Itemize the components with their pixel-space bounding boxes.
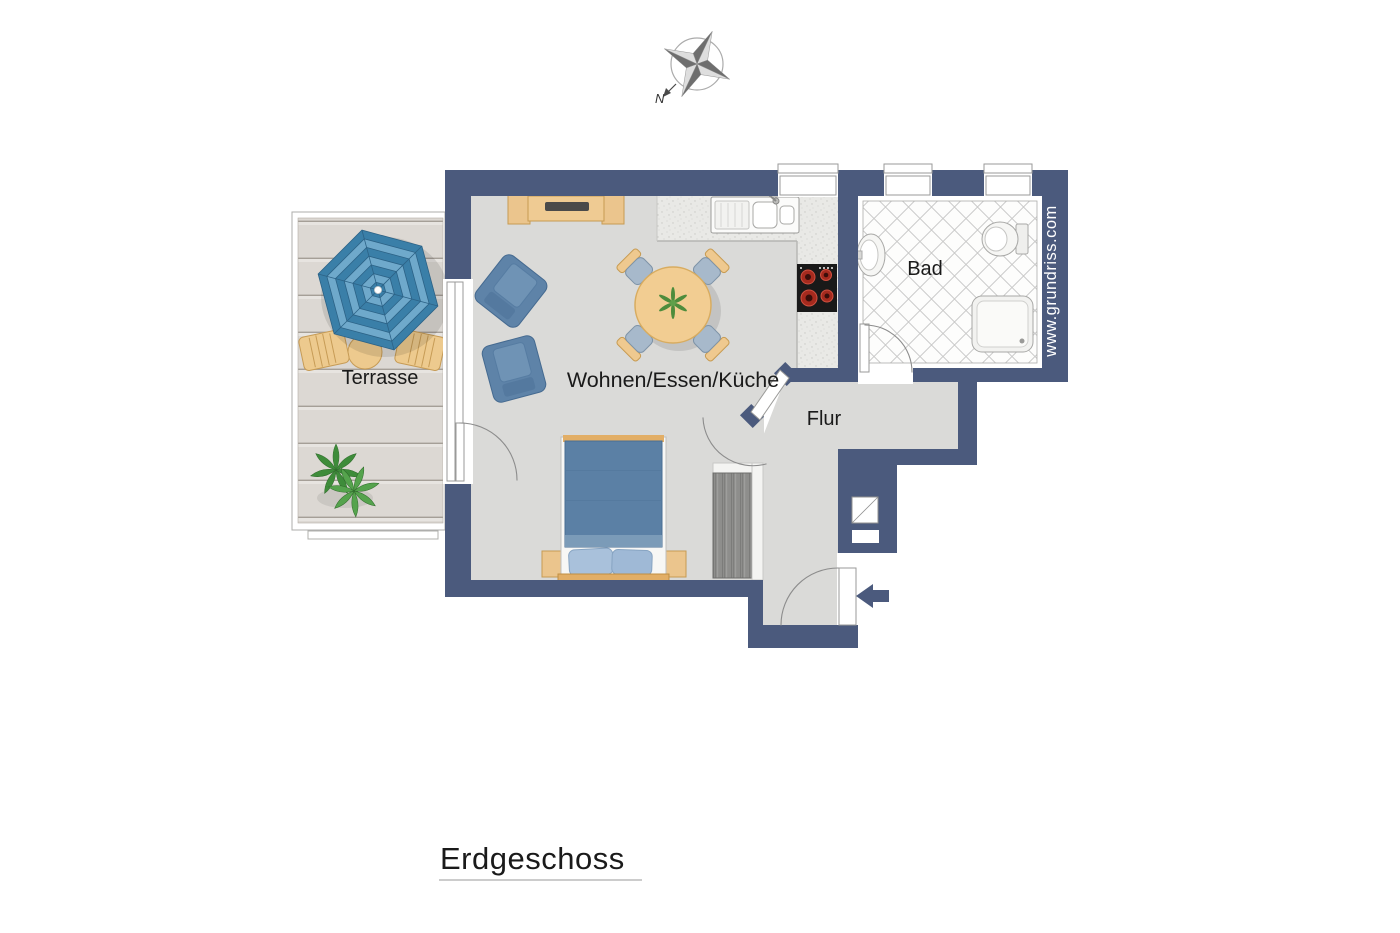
pillow [612, 549, 653, 575]
compass-north-label: N [655, 91, 665, 106]
pillow [568, 548, 613, 576]
cooktop-icon [797, 264, 837, 312]
wall-kitchen-bath-divider [838, 196, 858, 370]
brand-watermark: www.grundriss.com [1042, 205, 1060, 358]
wall-corridor-bottom [748, 625, 858, 648]
page-title: Erdgeschoss [440, 841, 625, 876]
window-icon [984, 163, 1032, 197]
wall-hall-right [958, 382, 977, 449]
window-icon [778, 163, 838, 197]
double-bed-icon [542, 435, 686, 584]
window-icon [884, 163, 932, 197]
installation-shaft-icon [852, 497, 879, 543]
wall-bath-hall [780, 368, 1068, 382]
wardrobe-icon [713, 463, 763, 580]
floorplan-canvas: N [0, 0, 1400, 933]
floorplan: N [0, 0, 1400, 933]
entrance-arrow-icon [856, 584, 889, 608]
wall-top [445, 170, 1068, 196]
wall-hall-bottom [838, 449, 977, 465]
duvet [565, 441, 662, 547]
room-label-wohnen: Wohnen/Essen/Küche [567, 368, 779, 392]
tv-icon [545, 202, 589, 211]
room-label-bad: Bad [907, 258, 943, 280]
compass-rose-icon: N [649, 16, 745, 112]
kitchen-sink-icon [711, 194, 799, 233]
wall-bottom-main [445, 580, 763, 597]
floor-title: Erdgeschoss [439, 841, 642, 880]
terrace-step [308, 531, 438, 539]
partition-trim [752, 463, 763, 580]
nightstand-icon [664, 551, 686, 577]
room-label-flur: Flur [807, 408, 842, 430]
sideboard-tv-icon [508, 194, 624, 224]
shower-icon [972, 296, 1033, 352]
room-label-terrasse: Terrasse [342, 367, 419, 389]
toilet-icon [982, 222, 1028, 256]
